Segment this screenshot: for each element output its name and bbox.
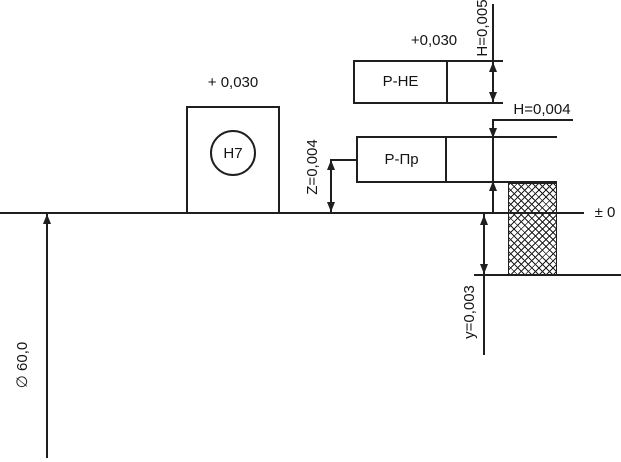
zero-line-label: ± 0 — [590, 204, 620, 222]
notgo-tolerance-arrow-top-icon — [489, 62, 497, 72]
wear-arrow-bottom-icon — [480, 264, 488, 274]
zero-line — [0, 212, 584, 214]
gauge-tolerance-diagram: ± 0 ∅ 60,0 + 0,030 H7 Р-НЕ +0,030 H=0,00… — [0, 0, 621, 462]
notgo-deviation-label: +0,030 — [405, 32, 463, 50]
hole-tolerance-circle: H7 — [210, 130, 256, 176]
go-tolerance-label: H=0,004 — [510, 101, 574, 119]
z-offset-arrow-top-icon — [327, 160, 335, 170]
notgo-box-divider — [446, 60, 448, 104]
notgo-tolerance-arrow-bottom-icon — [489, 92, 497, 102]
diameter-dim-line — [46, 214, 48, 458]
notgo-box-bottom-line — [353, 102, 503, 104]
go-tolerance-arrow-bottom-icon — [489, 181, 497, 191]
hole-tolerance-label: H7 — [223, 145, 242, 162]
go-gauge-label: Р-Пр — [358, 138, 445, 181]
wear-limit-label: y=0,003 — [461, 280, 479, 344]
wear-dim-line — [483, 214, 485, 355]
go-box-bottom-line — [356, 181, 557, 183]
wear-limit-line — [474, 274, 621, 276]
notgo-tolerance-label: H=0,005 — [474, 0, 492, 60]
go-tolerance-leader-line — [493, 119, 573, 121]
notgo-gauge-label: Р-НЕ — [355, 62, 446, 102]
z-offset-label: Z=0,004 — [304, 135, 322, 199]
wear-arrow-top-icon — [480, 215, 488, 225]
hole-upper-deviation-label: + 0,030 — [197, 74, 269, 92]
go-tolerance-arrow-top-icon — [489, 128, 497, 138]
diameter-dim-arrow-icon — [43, 214, 51, 224]
z-offset-arrow-bottom-icon — [327, 202, 335, 212]
go-box-divider — [445, 136, 447, 183]
notgo-tolerance-dim-line — [492, 4, 494, 104]
wear-zone-hatch — [508, 183, 557, 275]
diameter-label: ∅ 60,0 — [14, 335, 32, 395]
